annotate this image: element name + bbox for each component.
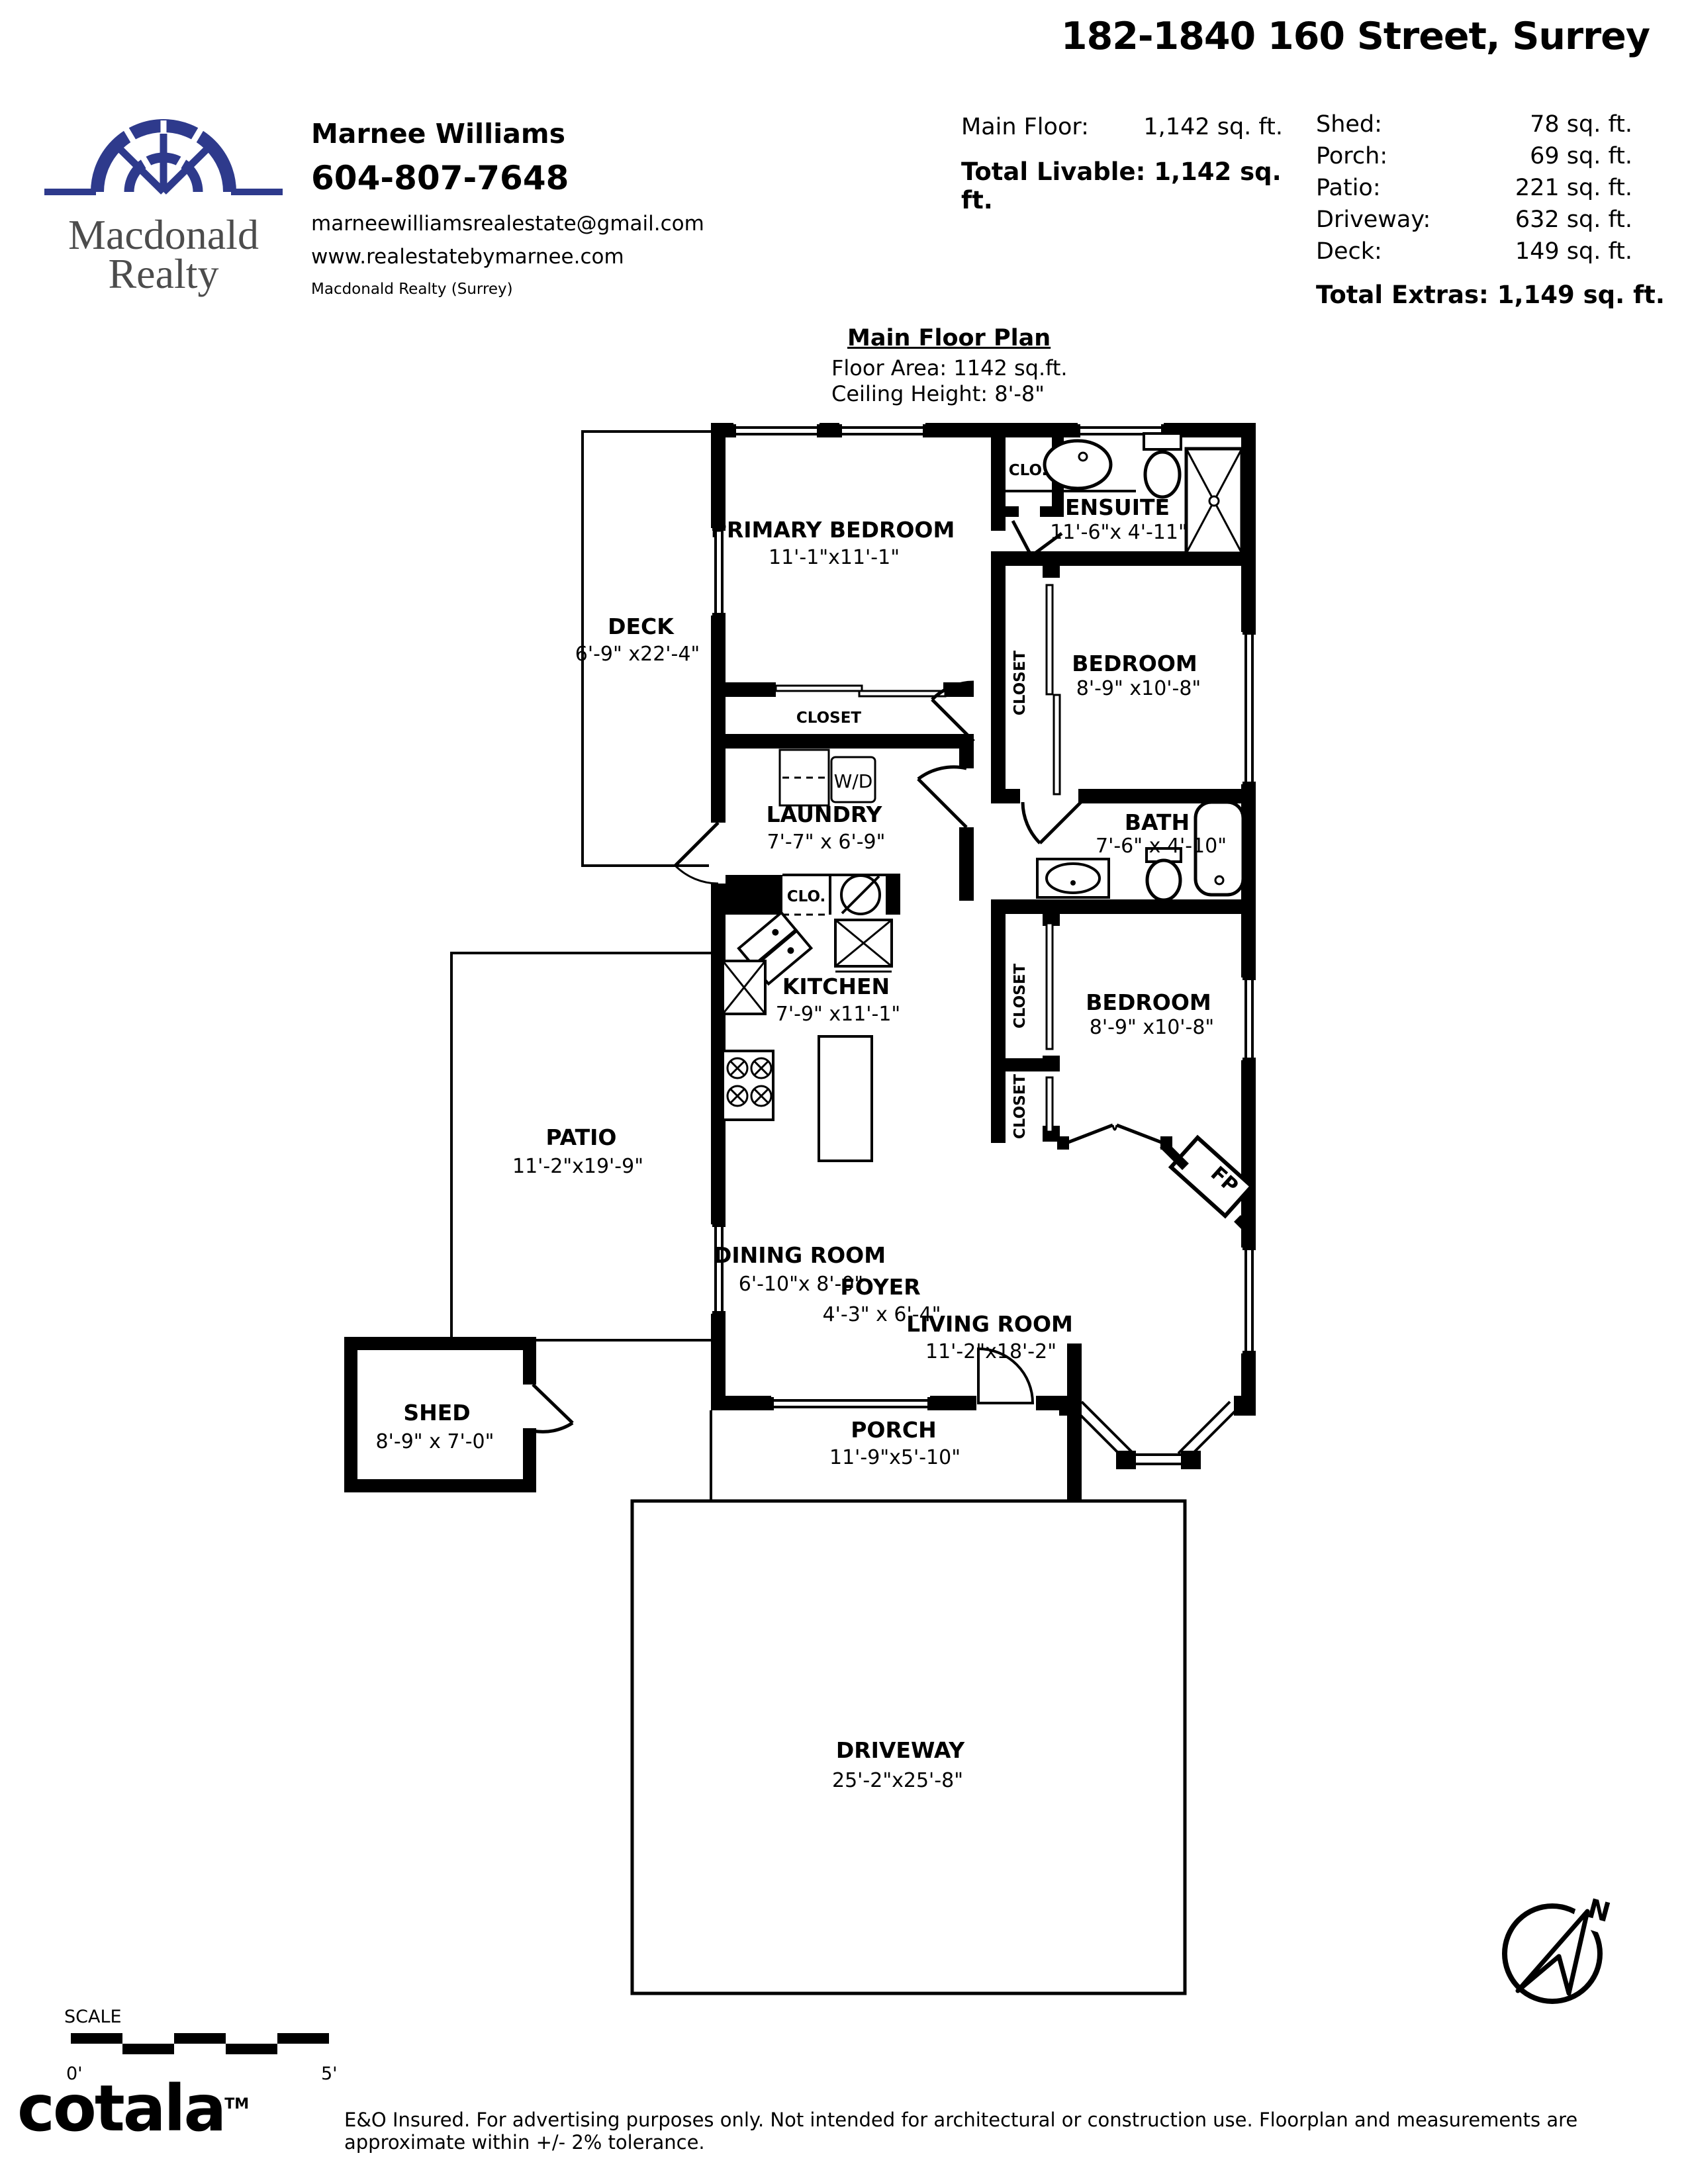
room-primary-bedroom-dims: 11'-1"x11'-1" bbox=[769, 546, 900, 569]
clo-kitchen-label: CLO. bbox=[787, 888, 826, 905]
room-porch-dims: 11'-9"x5'-10" bbox=[829, 1446, 961, 1469]
room-ensuite: ENSUITE bbox=[1065, 494, 1170, 520]
room-ensuite-dims: 11'-6"x 4'-11" bbox=[1050, 521, 1188, 544]
bay-windows bbox=[1074, 1402, 1238, 1464]
room-bedroom-lower-dims: 8'-9" x10'-8" bbox=[1090, 1016, 1214, 1039]
cotala-tm: TM bbox=[224, 2096, 249, 2113]
room-bath: BATH bbox=[1125, 809, 1190, 835]
cotala-logo: cotalaTM bbox=[17, 2077, 249, 2140]
room-deck: DECK bbox=[608, 614, 675, 639]
room-dining: DINING ROOM bbox=[714, 1242, 886, 1268]
room-laundry: LAUNDRY bbox=[767, 801, 883, 827]
closet-bedroom1-label: CLOSET bbox=[1011, 651, 1029, 716]
cotala-logo-text: cotala bbox=[17, 2071, 224, 2146]
window-bottom bbox=[769, 1394, 933, 1412]
washer-dryer-label: W/D bbox=[834, 770, 873, 792]
floor-plan-drawing: PRIMARY BEDROOM 11'-1"x11'-1" ENSUITE 11… bbox=[0, 0, 1688, 2184]
room-bedroom-lower: BEDROOM bbox=[1086, 989, 1211, 1015]
room-porch: PORCH bbox=[851, 1417, 937, 1443]
room-primary-bedroom: PRIMARY BEDROOM bbox=[711, 517, 955, 543]
room-foyer: FOYER bbox=[840, 1274, 920, 1300]
room-living: LIVING ROOM bbox=[906, 1311, 1073, 1337]
room-shed-dims: 8'-9" x 7'-0" bbox=[376, 1430, 494, 1453]
room-bedroom-upper: BEDROOM bbox=[1072, 651, 1197, 676]
floorplan-flyer-page: { "header": { "address": "182-1840 160 S… bbox=[0, 0, 1688, 2184]
room-deck-dims: 6'-9" x22'-4" bbox=[575, 643, 700, 666]
room-shed: SHED bbox=[403, 1400, 470, 1426]
room-bedroom-upper-dims: 8'-9" x10'-8" bbox=[1076, 677, 1201, 700]
compass-icon: N bbox=[1505, 1889, 1620, 2001]
closet-primary-label: CLOSET bbox=[796, 709, 862, 727]
disclaimer-text: E&O Insured. For advertising purposes on… bbox=[344, 2109, 1662, 2154]
closet-bedroom2a-label: CLOSET bbox=[1011, 964, 1029, 1029]
room-living-dims: 11'-2"x18'-2" bbox=[925, 1340, 1056, 1363]
room-patio: PATIO bbox=[546, 1124, 617, 1150]
clo-ensuite-label: CLO. bbox=[1009, 462, 1048, 479]
shed-door bbox=[533, 1385, 573, 1432]
room-bath-dims: 7'-6" x 4'-10" bbox=[1096, 835, 1227, 858]
kitchen-fixtures bbox=[723, 913, 892, 1161]
closet-bedroom2b-label: CLOSET bbox=[1011, 1074, 1029, 1140]
room-driveway-dims: 25'-2"x25'-8" bbox=[832, 1769, 963, 1792]
porch-right-wall bbox=[1067, 1410, 1082, 1501]
room-kitchen: KITCHEN bbox=[782, 974, 890, 999]
room-driveway: DRIVEWAY bbox=[836, 1737, 965, 1763]
deck-door bbox=[675, 823, 727, 884]
room-kitchen-dims: 7'-9" x11'-1" bbox=[776, 1003, 900, 1026]
room-patio-dims: 11'-2"x19'-9" bbox=[512, 1155, 643, 1178]
scale-label: SCALE bbox=[64, 2007, 122, 2027]
room-laundry-dims: 7'-7" x 6'-9" bbox=[767, 831, 886, 854]
scale-end: 5' bbox=[321, 2064, 338, 2084]
